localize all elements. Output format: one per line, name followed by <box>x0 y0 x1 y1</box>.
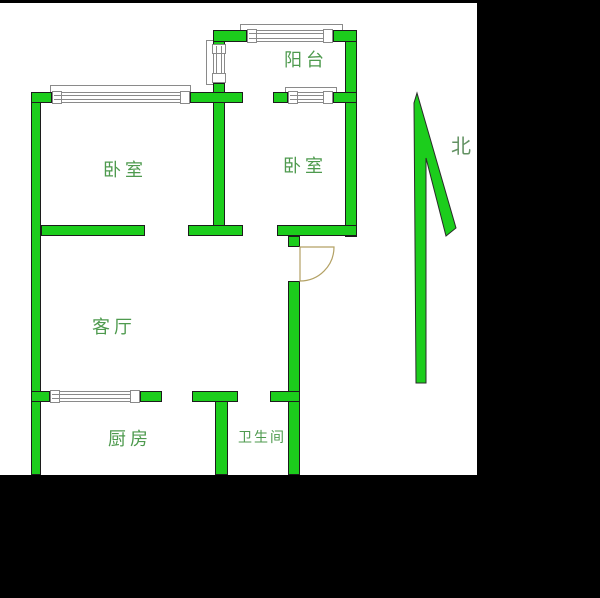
window-symbol <box>213 44 225 83</box>
window-symbol <box>288 92 333 103</box>
window-symbol <box>247 30 333 42</box>
wall-segment <box>215 391 228 475</box>
window-symbol <box>50 391 140 402</box>
wall-segment <box>277 225 357 236</box>
window-symbol <box>52 92 190 103</box>
wall-segment <box>192 391 238 402</box>
wall-segment <box>213 92 225 236</box>
wall-segment <box>333 92 357 103</box>
wall-segment <box>31 92 41 475</box>
apartment-floor-plan <box>0 0 477 475</box>
room-label-bedroom-right: 卧室 <box>283 157 327 177</box>
wall-segment <box>333 30 357 42</box>
wall-segment <box>288 236 300 247</box>
wall-segment <box>41 225 145 236</box>
wall-segment <box>140 391 162 402</box>
wall-segment <box>345 30 357 237</box>
wall-segment <box>288 281 300 475</box>
wall-segment <box>190 92 243 103</box>
room-label-bedroom-left: 卧室 <box>103 161 147 181</box>
wall-segment <box>273 92 288 103</box>
room-label-balcony: 阳台 <box>284 51 328 71</box>
north-label: 北 <box>451 135 471 157</box>
wall-segment <box>270 391 300 402</box>
room-label-kitchen: 厨房 <box>108 430 152 450</box>
wall-segment <box>31 391 50 402</box>
wall-segment <box>31 92 52 103</box>
room-label-living-room: 客厅 <box>92 318 136 338</box>
floor-plan-image: 阳台 卧室 卧室 客厅 厨房 卫生间 北 <box>0 0 600 598</box>
wall-segment <box>188 225 243 236</box>
letterbox-bar-bottom <box>0 475 600 598</box>
room-label-bathroom: 卫生间 <box>238 431 286 446</box>
wall-segment <box>213 30 247 42</box>
